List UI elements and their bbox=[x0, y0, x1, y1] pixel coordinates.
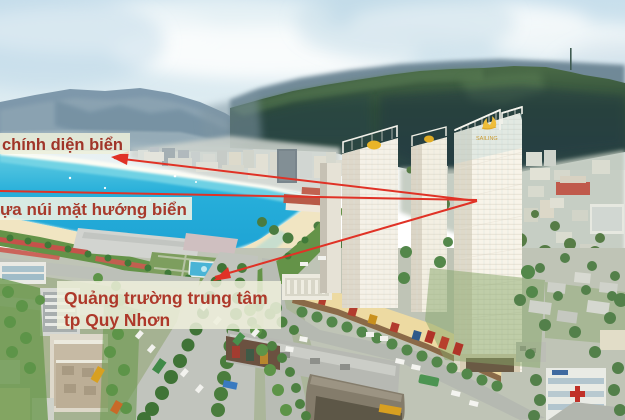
svg-text:SAILING: SAILING bbox=[476, 136, 498, 142]
svg-text:tp Quy Nhơn: tp Quy Nhơn bbox=[64, 310, 170, 330]
svg-text:chính diện biển: chính diện biển bbox=[2, 136, 123, 154]
svg-text:Quảng trường trung tâm: Quảng trường trung tâm bbox=[64, 288, 268, 308]
svg-text:ựa núi mặt hướng biển: ựa núi mặt hướng biển bbox=[0, 200, 187, 219]
